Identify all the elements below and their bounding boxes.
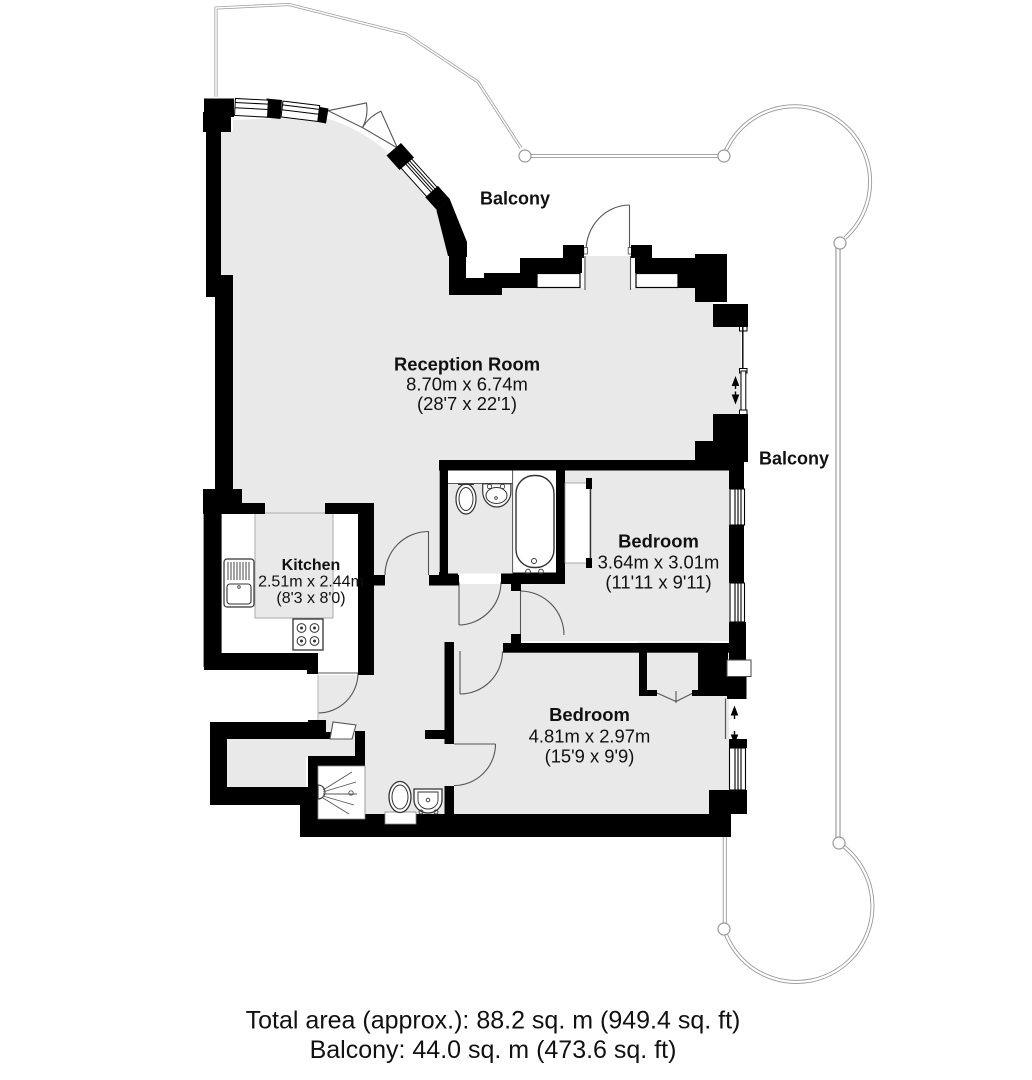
svg-text:(8'3 x 8'0): (8'3 x 8'0) xyxy=(276,590,345,607)
svg-text:8.70m x 6.74m: 8.70m x 6.74m xyxy=(406,373,528,394)
svg-text:(15'9 x 9'9): (15'9 x 9'9) xyxy=(545,746,635,767)
svg-text:Balcony: Balcony xyxy=(480,189,550,209)
svg-text:Balcony: 44.0 sq. m (473.6 sq.: Balcony: 44.0 sq. m (473.6 sq. ft) xyxy=(310,1036,677,1064)
svg-text:Kitchen: Kitchen xyxy=(282,557,341,574)
svg-text:Total area (approx.): 88.2 sq.: Total area (approx.): 88.2 sq. m (949.4 … xyxy=(246,1007,741,1035)
svg-text:Balcony: Balcony xyxy=(759,449,829,469)
svg-text:Bedroom: Bedroom xyxy=(549,704,630,725)
svg-text:(28'7 x 22'1): (28'7 x 22'1) xyxy=(417,393,517,414)
svg-text:Reception Room: Reception Room xyxy=(394,354,540,375)
svg-text:Bedroom: Bedroom xyxy=(618,531,699,552)
svg-text:(11'11 x 9'11): (11'11 x 9'11) xyxy=(605,572,711,593)
svg-text:4.81m x 2.97m: 4.81m x 2.97m xyxy=(529,726,651,747)
svg-text:3.64m x 3.01m: 3.64m x 3.01m xyxy=(598,551,720,572)
svg-text:2.51m x 2.44m: 2.51m x 2.44m xyxy=(258,574,364,591)
